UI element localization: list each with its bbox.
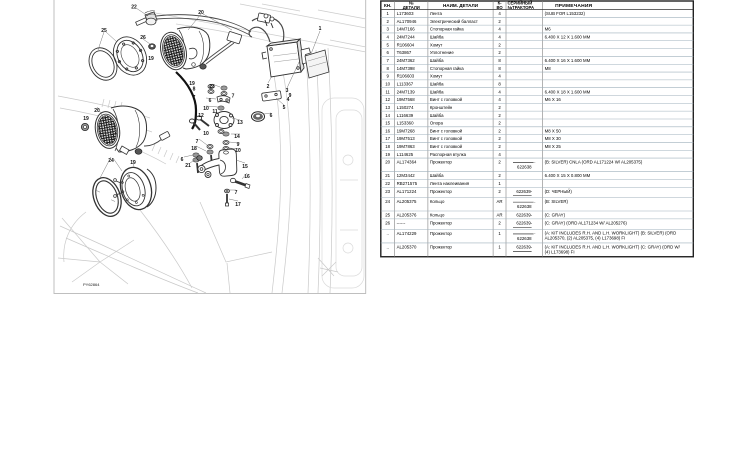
svg-text:L150274: L150274: [397, 105, 414, 110]
svg-text:2: 2: [267, 84, 270, 90]
svg-text:T63867: T63867: [397, 50, 412, 55]
svg-text:19: 19: [148, 56, 154, 62]
svg-text:НАИМ. ДЕТАЛИ: НАИМ. ДЕТАЛИ: [443, 3, 478, 8]
svg-text:..: ..: [386, 245, 388, 250]
svg-text:14: 14: [234, 134, 240, 140]
svg-text:15: 15: [385, 121, 390, 126]
svg-text:19: 19: [83, 116, 89, 122]
svg-text:AL170946: AL170946: [397, 19, 417, 24]
svg-text:7: 7: [196, 139, 199, 145]
svg-text:7: 7: [232, 93, 235, 99]
svg-text:622639-: 622639-: [516, 189, 532, 194]
svg-text:10: 10: [203, 131, 209, 137]
svg-text:Винт с головкой: Винт с головкой: [430, 128, 463, 133]
svg-text:Кронштейн: Кронштейн: [430, 105, 453, 110]
svg-text:AR: AR: [497, 213, 503, 218]
svg-text:17: 17: [235, 202, 241, 208]
svg-text:Прожектор: Прожектор: [430, 231, 453, 236]
svg-text:19M7513: 19M7513: [397, 136, 416, 141]
svg-text:14: 14: [385, 113, 390, 118]
svg-text:Стопорная гайка: Стопорная гайка: [430, 66, 464, 71]
svg-text:AR: AR: [497, 199, 503, 204]
svg-text:M8 X 50: M8 X 50: [545, 128, 562, 133]
svg-text:Прожектор: Прожектор: [430, 220, 453, 225]
svg-text:24M7139: 24M7139: [397, 89, 416, 94]
svg-text:Шайба: Шайба: [430, 113, 444, 118]
svg-text:Лента наклеивания: Лента наклеивания: [430, 181, 470, 186]
svg-text:25: 25: [385, 213, 390, 218]
svg-text:12M3442: 12M3442: [397, 173, 416, 178]
svg-text:5: 5: [283, 105, 286, 111]
svg-text:10: 10: [385, 81, 390, 86]
svg-text:Кольцо: Кольцо: [430, 213, 445, 218]
svg-text:14M7398: 14M7398: [397, 66, 416, 71]
svg-text:------: ------: [397, 220, 406, 225]
svg-text:22: 22: [131, 4, 137, 10]
svg-text:19M7863: 19M7863: [397, 144, 416, 149]
svg-text:26: 26: [140, 35, 146, 41]
svg-text:14M7166: 14M7166: [397, 27, 416, 32]
svg-text:622638: 622638: [517, 236, 532, 241]
svg-text:7: 7: [235, 190, 238, 196]
svg-text:24: 24: [385, 199, 390, 204]
svg-text:24M7244: 24M7244: [397, 35, 416, 40]
svg-text:622639-: 622639-: [516, 213, 532, 218]
svg-text:AL205370: AL205370: [397, 245, 417, 250]
svg-text:M6: M6: [545, 27, 552, 32]
svg-text:M6 X 16: M6 X 16: [545, 97, 562, 102]
svg-text:AL205375: AL205375: [397, 199, 417, 204]
svg-text:18: 18: [385, 144, 390, 149]
svg-text:AL174229: AL174229: [397, 231, 417, 236]
svg-text:M8 X 30: M8 X 30: [545, 136, 562, 141]
svg-text:6.400 X 18 X 1.600 MM: 6.400 X 18 X 1.600 MM: [545, 89, 591, 94]
svg-text:Шайба: Шайба: [430, 81, 444, 86]
svg-text:ДЕТАЛИ: ДЕТАЛИ: [403, 5, 420, 10]
svg-text:12: 12: [198, 113, 204, 119]
svg-text:L114625: L114625: [397, 152, 414, 157]
svg-text:19M7568: 19M7568: [397, 97, 416, 102]
svg-text:23: 23: [385, 189, 390, 194]
svg-text:(B: SILVER): (B: SILVER): [545, 199, 569, 204]
svg-text:(B: SILVER) CNLA (ORD AL171224: (B: SILVER) CNLA (ORD AL171224 W/ AL2053…: [545, 160, 643, 165]
svg-text:(SUB FOR L153232): (SUB FOR L153232): [545, 11, 586, 16]
svg-text:16: 16: [244, 174, 250, 180]
svg-text:(4) L173698) FI: (4) L173698) FI: [545, 249, 575, 254]
svg-text:AL205376: AL205376: [397, 213, 417, 218]
svg-text:RB271575: RB271575: [397, 181, 418, 186]
svg-text:22: 22: [385, 181, 390, 186]
svg-text:622639-: 622639-: [516, 220, 532, 225]
svg-text:6.400 X 15 X 0.800 MM: 6.400 X 15 X 0.800 MM: [545, 173, 591, 178]
svg-text:M8 X 25: M8 X 25: [545, 144, 562, 149]
svg-text:AL205370, (2) AL205375, (4) L1: AL205370, (2) AL205375, (4) L173698) FI: [545, 236, 626, 241]
svg-text:AL174364: AL174364: [397, 160, 417, 165]
svg-text:20: 20: [385, 160, 390, 165]
svg-text:Хомут: Хомут: [430, 74, 442, 79]
svg-text:622638: 622638: [517, 165, 532, 170]
svg-text:(C: GRAY) (ORD AL171234 W/ AL2: (C: GRAY) (ORD AL171234 W/ AL205276): [545, 220, 628, 225]
svg-text:6: 6: [181, 157, 184, 163]
svg-text:622638: 622638: [517, 204, 532, 209]
svg-text:4: 4: [287, 97, 290, 103]
svg-text:19: 19: [385, 152, 390, 157]
svg-text:Уплотнение: Уплотнение: [430, 50, 454, 55]
svg-text:26: 26: [385, 220, 390, 225]
svg-text:17: 17: [385, 136, 390, 141]
svg-text:15: 15: [242, 164, 248, 170]
svg-text:Шайба: Шайба: [430, 35, 444, 40]
svg-text:Прожектор: Прожектор: [430, 245, 453, 250]
svg-text:6: 6: [270, 113, 273, 119]
svg-text:Хомут: Хомут: [430, 42, 442, 47]
svg-text:10: 10: [203, 106, 209, 112]
svg-text:L113367: L113367: [397, 81, 414, 86]
svg-text:R106604: R106604: [397, 42, 415, 47]
svg-text:13: 13: [237, 120, 243, 126]
svg-text:M8: M8: [545, 66, 552, 71]
svg-text:Стопорная гайка: Стопорная гайка: [430, 27, 464, 32]
svg-text:L173603: L173603: [397, 11, 414, 16]
svg-text:ПРИМЕЧАНИЯ: ПРИМЕЧАНИЯ: [555, 3, 592, 9]
svg-text:8: 8: [193, 86, 196, 92]
svg-text:L153360: L153360: [397, 121, 414, 126]
svg-text:21: 21: [185, 163, 191, 169]
svg-text:20: 20: [94, 108, 100, 114]
svg-text:Шайба: Шайба: [430, 58, 444, 63]
svg-text:16: 16: [385, 128, 390, 133]
svg-text:PY62864: PY62864: [83, 282, 100, 287]
svg-text:622639-: 622639-: [516, 245, 532, 250]
svg-text:Опора: Опора: [430, 121, 444, 126]
svg-text:6.400 X 16 X 1.600 MM: 6.400 X 16 X 1.600 MM: [545, 58, 591, 63]
svg-text:21: 21: [385, 173, 390, 178]
svg-text:(D: ЧЕРНЫЙ): (D: ЧЕРНЫЙ): [545, 189, 573, 194]
svg-text:19M7268: 19M7268: [397, 128, 416, 133]
svg-text:24M7362: 24M7362: [397, 58, 416, 63]
svg-text:Лента: Лента: [430, 11, 443, 16]
svg-text:13: 13: [385, 105, 390, 110]
svg-text:Шайба: Шайба: [430, 173, 444, 178]
svg-text:AL171224: AL171224: [397, 189, 417, 194]
svg-text:11: 11: [212, 109, 218, 115]
svg-text:Прожектор: Прожектор: [430, 189, 453, 194]
svg-text:11: 11: [385, 89, 390, 94]
svg-text:20: 20: [198, 10, 204, 16]
svg-text:Винт с головкой: Винт с головкой: [430, 136, 463, 141]
svg-text:№ТРАКТОРА: №ТРАКТОРА: [508, 5, 535, 10]
svg-text:R106603: R106603: [397, 74, 415, 79]
svg-text:Прожектор: Прожектор: [430, 160, 453, 165]
svg-text:1: 1: [319, 26, 322, 32]
svg-text:Винт с головкой: Винт с головкой: [430, 144, 463, 149]
svg-text:7: 7: [193, 95, 196, 101]
svg-text:12: 12: [385, 97, 390, 102]
svg-text:Электрический балласт: Электрический балласт: [430, 19, 478, 24]
svg-text:(C: GRAY): (C: GRAY): [545, 213, 566, 218]
svg-text:Распорная втулка: Распорная втулка: [430, 152, 467, 157]
svg-text:Кольцо: Кольцо: [430, 199, 445, 204]
svg-text:КН.: КН.: [384, 3, 391, 8]
svg-text:L116639: L116639: [397, 113, 414, 118]
svg-text:Шайба: Шайба: [430, 89, 444, 94]
svg-text:ВО: ВО: [496, 5, 503, 10]
svg-text:Винт с головкой: Винт с головкой: [430, 97, 463, 102]
svg-text:18: 18: [191, 146, 197, 152]
svg-text:6.400 X 12 X 1.600 MM: 6.400 X 12 X 1.600 MM: [545, 35, 591, 40]
svg-text:25: 25: [101, 28, 107, 34]
svg-text:..: ..: [386, 231, 388, 236]
